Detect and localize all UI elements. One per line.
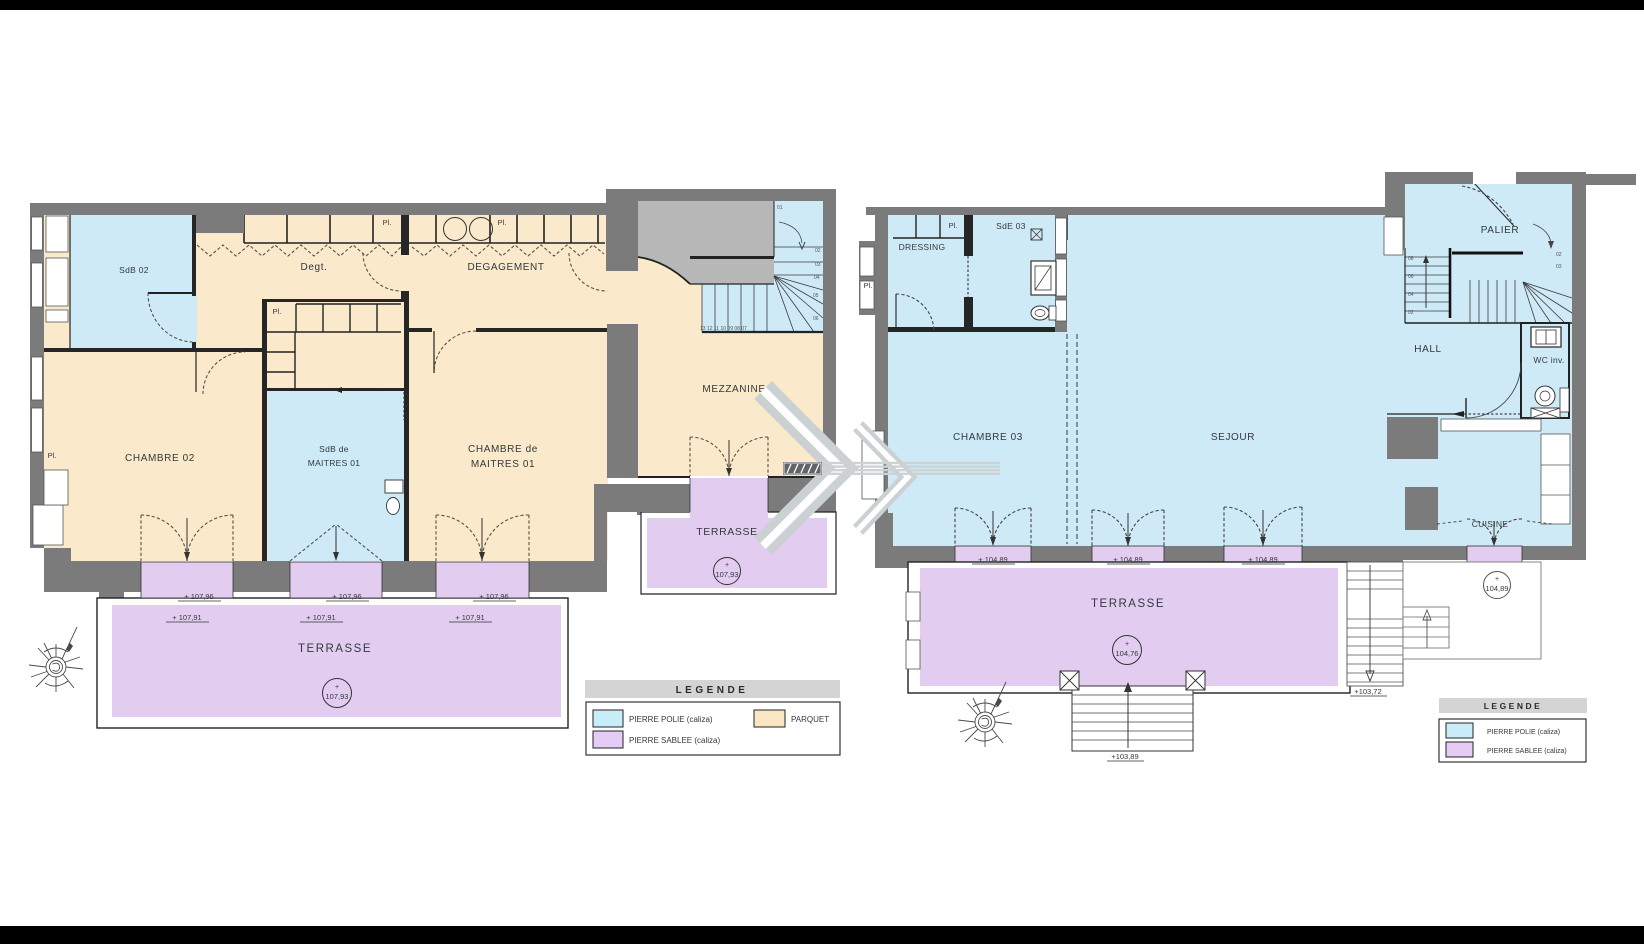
svg-text:TERRASSE: TERRASSE: [696, 526, 757, 538]
svg-text:104,76: 104,76: [1116, 649, 1139, 658]
svg-text:+ 104,89: + 104,89: [1113, 555, 1142, 564]
svg-text:+ 107,96: + 107,96: [184, 592, 213, 601]
svg-text:SdB de: SdB de: [319, 444, 349, 454]
svg-text:HALL: HALL: [1414, 344, 1441, 355]
svg-text:Pl.: Pl.: [273, 307, 282, 316]
svg-text:04: 04: [814, 275, 820, 281]
svg-text:06: 06: [813, 316, 819, 322]
svg-text:SdE 03: SdE 03: [996, 221, 1026, 231]
svg-text:02: 02: [1556, 252, 1562, 258]
svg-text:SEJOUR: SEJOUR: [1211, 432, 1255, 443]
svg-text:WC inv.: WC inv.: [1533, 355, 1564, 365]
svg-text:MAITRES 01: MAITRES 01: [308, 458, 361, 468]
svg-text:MEZZANINE: MEZZANINE: [702, 384, 765, 395]
svg-text:+103,72: +103,72: [1354, 687, 1381, 696]
svg-text:04: 04: [1408, 292, 1414, 298]
svg-text:107,93: 107,93: [716, 570, 739, 579]
svg-text:LEGENDE: LEGENDE: [676, 685, 749, 696]
svg-text:107,93: 107,93: [326, 692, 349, 701]
svg-text:PIERRE POLIE (caliza): PIERRE POLIE (caliza): [629, 715, 713, 724]
svg-text:Pl.: Pl.: [949, 221, 958, 230]
svg-text:13 12 11 10 09 08 07: 13 12 11 10 09 08 07: [700, 326, 747, 332]
svg-text:MAITRES 01: MAITRES 01: [471, 459, 535, 470]
svg-text:Pl.: Pl.: [864, 281, 873, 290]
svg-text:08: 08: [1408, 256, 1414, 262]
svg-text:05: 05: [813, 293, 819, 299]
svg-text:Degt.: Degt.: [301, 262, 328, 273]
svg-text:+ 107,96: + 107,96: [332, 592, 361, 601]
svg-text:TERRASSE: TERRASSE: [298, 643, 372, 655]
svg-text:PARQUET: PARQUET: [791, 715, 829, 724]
svg-text:+ 104,89: + 104,89: [978, 555, 1007, 564]
svg-text:+ 107,91: + 107,91: [306, 613, 335, 622]
svg-text:CHAMBRE 02: CHAMBRE 02: [125, 453, 195, 464]
svg-text:Pl.: Pl.: [383, 218, 392, 227]
svg-text:06: 06: [1408, 274, 1414, 280]
svg-text:+103,89: +103,89: [1111, 752, 1138, 761]
svg-text:+: +: [725, 562, 729, 569]
svg-text:CHAMBRE de: CHAMBRE de: [468, 444, 538, 455]
svg-text:SdB 02: SdB 02: [119, 265, 149, 275]
svg-text:02: 02: [815, 248, 821, 254]
svg-text:PIERRE SABLEE (caliza): PIERRE SABLEE (caliza): [629, 736, 720, 745]
svg-text:Pl.: Pl.: [498, 218, 507, 227]
svg-text:PIERRE SABLEE (caliza): PIERRE SABLEE (caliza): [1487, 748, 1567, 755]
svg-text:+ 104,89: + 104,89: [1248, 555, 1277, 564]
svg-text:01: 01: [777, 205, 783, 211]
svg-text:104,89: 104,89: [1486, 584, 1509, 593]
svg-text:CUISINE: CUISINE: [1472, 519, 1509, 529]
svg-text:+ 107,91: + 107,91: [172, 613, 201, 622]
svg-text:+: +: [1125, 641, 1129, 648]
svg-text:LEGENDE: LEGENDE: [1484, 701, 1543, 711]
svg-text:PIERRE POLIE (caliza): PIERRE POLIE (caliza): [1487, 729, 1560, 736]
svg-text:+ 107,91: + 107,91: [455, 613, 484, 622]
svg-text:CHAMBRE 03: CHAMBRE 03: [953, 432, 1023, 443]
svg-text:03: 03: [1556, 264, 1562, 270]
svg-text:+ 107,96: + 107,96: [479, 592, 508, 601]
svg-text:DRESSING: DRESSING: [899, 242, 946, 252]
svg-text:DEGAGEMENT: DEGAGEMENT: [467, 262, 544, 273]
svg-text:Pl.: Pl.: [48, 451, 57, 460]
svg-text:TERRASSE: TERRASSE: [1091, 598, 1165, 610]
svg-text:+: +: [335, 684, 339, 691]
svg-text:PALIER: PALIER: [1481, 225, 1519, 236]
svg-text:03: 03: [815, 262, 821, 268]
svg-text:02: 02: [1408, 310, 1414, 316]
svg-text:+: +: [1495, 576, 1499, 583]
